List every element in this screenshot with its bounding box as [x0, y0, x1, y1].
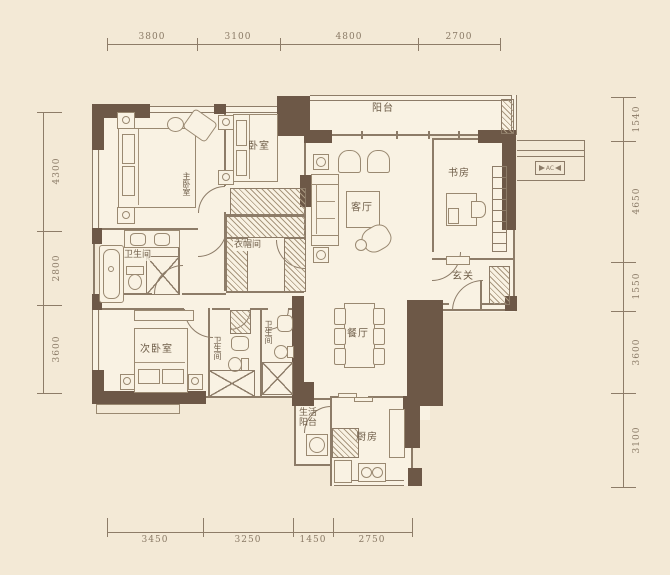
- dim-tick: [107, 38, 108, 51]
- chair: [373, 348, 385, 365]
- pillow: [122, 166, 135, 196]
- desk-monitor: [448, 208, 459, 224]
- bookshelf: [492, 166, 507, 252]
- balcony-railing: [310, 95, 515, 101]
- dim-tick: [280, 38, 281, 51]
- wall-segment: [332, 134, 478, 136]
- dim-tick: [37, 393, 62, 394]
- wall-thick: [304, 130, 332, 143]
- dim-tick: [203, 518, 204, 537]
- dim-tick: [107, 518, 108, 537]
- dim-tick: [37, 231, 62, 232]
- wall-thick: [408, 468, 422, 486]
- fridge: [334, 460, 352, 483]
- chair: [334, 348, 346, 365]
- drain: [108, 266, 114, 272]
- wall-segment: [432, 138, 480, 140]
- dim-value: 3600: [52, 336, 62, 363]
- room-label-second-bedroom: 次卧室: [140, 344, 173, 355]
- dim-value: 2700: [446, 32, 473, 42]
- wall-segment: [294, 398, 296, 466]
- room-label-balcony: 阳台: [372, 103, 394, 114]
- window: [150, 106, 214, 113]
- room-label-service-balcony: 生活阳台: [299, 408, 321, 428]
- wall-thick: [92, 228, 102, 244]
- sink: [231, 336, 249, 351]
- room-label-bathroom-2: 卫生间: [212, 336, 223, 376]
- dim-value: 4650: [632, 188, 642, 215]
- pillow: [236, 120, 247, 146]
- wall-thick: [403, 396, 420, 448]
- dim-tick: [412, 518, 413, 537]
- sliding-door: [354, 397, 373, 402]
- dim-tick: [611, 141, 636, 142]
- washer-drum: [309, 437, 325, 453]
- dim-tick: [611, 487, 636, 488]
- armchair: [367, 150, 390, 173]
- bathtub-inner: [103, 249, 120, 299]
- dim-value: 2750: [359, 535, 386, 545]
- dim-tick: [611, 311, 636, 312]
- ac-marker-triangle: [555, 165, 561, 171]
- window: [92, 150, 99, 228]
- dim-value: 2800: [52, 255, 62, 282]
- lamp: [123, 377, 131, 385]
- closet-shelf: [226, 216, 306, 238]
- burner: [361, 467, 372, 478]
- wall-segment: [250, 308, 268, 310]
- dim-tick: [418, 38, 419, 51]
- sofa-line: [317, 201, 335, 202]
- lamp: [222, 118, 230, 126]
- pillow: [162, 369, 184, 384]
- ac-platform-line: [517, 150, 585, 151]
- room-label-master-bedroom: 主卧室: [176, 172, 192, 228]
- shower: [262, 362, 293, 395]
- dim-value: 3450: [142, 535, 169, 545]
- lamp: [191, 377, 199, 385]
- dim-line: [43, 112, 44, 393]
- wall-thick: [214, 104, 226, 114]
- toilet-tank: [287, 346, 294, 358]
- ac-marker-triangle: [539, 165, 545, 171]
- ac-marker-label: AC: [546, 165, 554, 172]
- bed-line: [138, 129, 139, 205]
- room-label-bathroom-3: 卫生间: [263, 320, 274, 360]
- ac-platform-line: [584, 140, 585, 181]
- kitchen-counter: [389, 409, 405, 458]
- dim-tick: [37, 305, 62, 306]
- dim-value: 3100: [632, 427, 642, 454]
- room-label-study: 书房: [448, 168, 470, 179]
- room-label-bathroom-master: 卫生间: [124, 250, 151, 261]
- dim-value: 1540: [632, 106, 642, 133]
- pillow: [138, 369, 160, 384]
- wall-segment: [93, 244, 95, 296]
- plant: [316, 157, 326, 167]
- wall-segment: [212, 308, 230, 310]
- dim-value: 4300: [52, 158, 62, 185]
- chair: [334, 328, 346, 345]
- bay-ledge: [96, 404, 180, 414]
- ottoman: [355, 239, 367, 251]
- toilet: [128, 274, 142, 290]
- window-mullion: [361, 131, 363, 139]
- dim-tick: [611, 393, 636, 394]
- dim-value: 1550: [632, 273, 642, 300]
- sink: [130, 233, 146, 246]
- desk-chair: [471, 201, 486, 218]
- dim-tick: [37, 112, 62, 113]
- shower: [146, 256, 180, 295]
- cabinet: [446, 256, 470, 265]
- wardrobe: [230, 188, 306, 215]
- column: [501, 99, 514, 134]
- lamp: [122, 211, 130, 219]
- wall-segment: [294, 464, 332, 466]
- lamp: [222, 173, 230, 181]
- window-mullion: [396, 131, 398, 139]
- dim-line: [623, 97, 624, 487]
- sink: [277, 315, 293, 332]
- chair: [334, 308, 346, 325]
- pillow: [122, 134, 135, 164]
- armchair: [338, 150, 361, 173]
- room-label-closet: 衣帽间: [233, 240, 262, 251]
- wall-segment: [432, 138, 434, 252]
- dim-tick: [611, 97, 636, 98]
- dim-value: 4800: [336, 32, 363, 42]
- dim-value: 3100: [225, 32, 252, 42]
- sofa-line: [316, 184, 317, 234]
- wall-thick: [407, 300, 443, 406]
- stool: [167, 117, 184, 132]
- cabinet: [230, 310, 251, 334]
- dim-tick: [197, 38, 198, 51]
- burner: [372, 467, 383, 478]
- floor-plan: 3800 3100 4800 2700 3450 3250 1450 2750 …: [0, 0, 670, 575]
- wall-thick: [292, 382, 314, 406]
- kitchen-counter: [332, 428, 359, 458]
- dim-value: 3600: [632, 339, 642, 366]
- dim-line: [107, 44, 501, 45]
- wall-thick: [92, 104, 104, 150]
- bed-line: [135, 362, 185, 363]
- pillow: [236, 150, 247, 176]
- sink: [154, 233, 170, 246]
- dim-value: 3800: [139, 32, 166, 42]
- ac-unit-marker: AC: [535, 161, 565, 175]
- ac-platform-line: [517, 156, 585, 157]
- window: [226, 106, 277, 113]
- window-mullion: [428, 131, 430, 139]
- dim-tick: [333, 518, 334, 537]
- closet-shelf: [284, 238, 306, 292]
- sofa-line: [317, 218, 335, 219]
- ac-platform-line: [517, 140, 585, 141]
- dim-line: [107, 532, 413, 533]
- dim-value: 1450: [300, 535, 327, 545]
- sofa-arm: [311, 235, 339, 246]
- dim-tick: [293, 518, 294, 537]
- dim-tick: [500, 38, 501, 51]
- room-label-living-room: 客厅: [351, 203, 373, 214]
- room-label-foyer: 玄关: [452, 271, 474, 282]
- wall-segment: [182, 293, 226, 295]
- ac-platform-line: [517, 180, 585, 181]
- room-label-bedroom: 卧室: [248, 141, 270, 152]
- toilet: [274, 345, 288, 359]
- shoe-cabinet: [489, 266, 510, 305]
- lamp: [122, 116, 130, 124]
- chair: [373, 308, 385, 325]
- plant: [316, 250, 326, 260]
- window: [92, 310, 99, 370]
- dim-value: 3250: [235, 535, 262, 545]
- room-label-dining-room: 餐厅: [347, 329, 369, 340]
- room-label-kitchen: 厨房: [356, 432, 378, 443]
- dresser: [134, 310, 194, 321]
- chair: [373, 328, 385, 345]
- wall-segment: [443, 303, 449, 305]
- door-leaf: [480, 280, 482, 311]
- dim-tick: [611, 262, 636, 263]
